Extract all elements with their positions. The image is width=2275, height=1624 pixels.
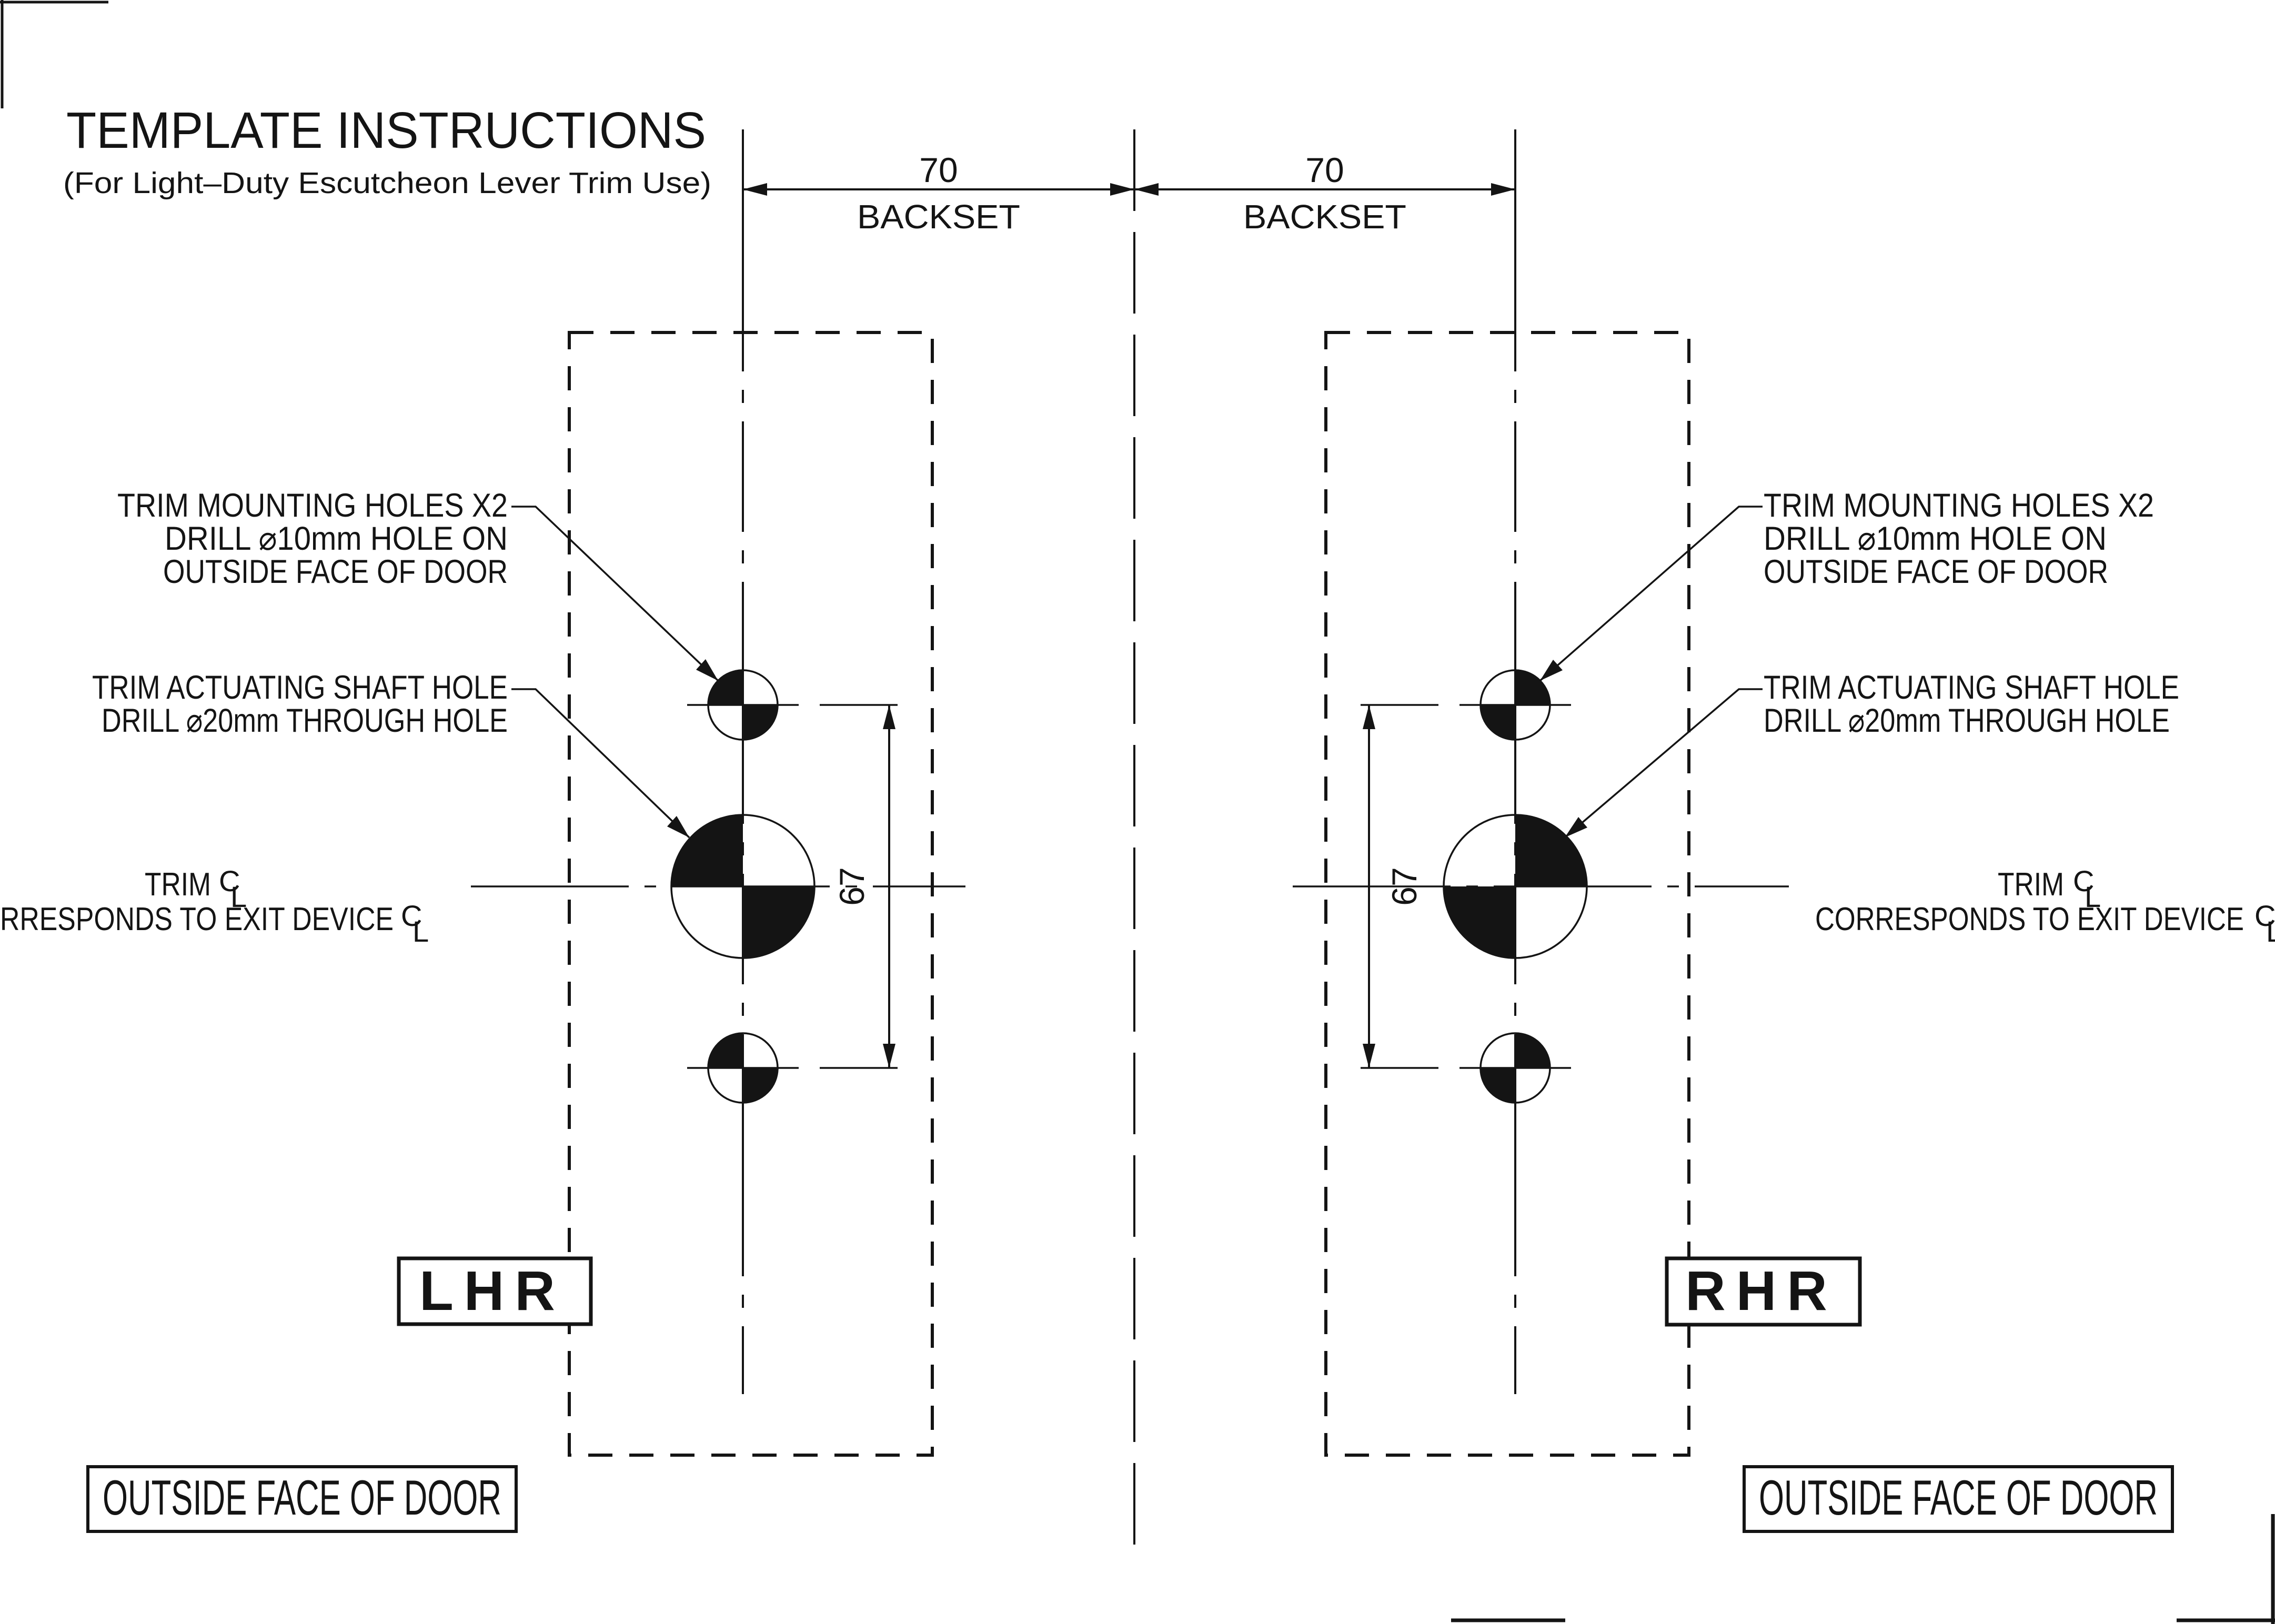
trim-cl-line2-left: RRESPONDS TO EXIT DEVICE [0,901,394,937]
hole-spacing-value-right: 67 [1385,867,1424,905]
lhr-diagram: 67 [671,670,898,1103]
centerline-symbol: C L [401,899,429,948]
backset-label-right: BACKSET [1243,198,1406,236]
mounting-label-line3: OUTSIDE FACE OF DOOR [1764,553,2108,590]
outside-face-box-right: OUTSIDE FACE OF DOOR [1744,1467,2172,1531]
mounting-label-line1: TRIM MOUNTING HOLES X2 [1764,487,2154,524]
backset-dimension-right: 70 BACKSET [1134,150,1515,236]
annotations-right: TRIM MOUNTING HOLES X2 DRILL ⌀10mm HOLE … [1764,487,2275,948]
page-subtitle: (For Light–Duty Escutcheon Lever Trim Us… [63,166,711,200]
template-drawing-sheet: TEMPLATE INSTRUCTIONS (For Light–Duty Es… [0,0,2275,1624]
mounting-label-line2: DRILL ⌀10mm HOLE ON [165,520,508,557]
hole-quadrant-ne [1515,1033,1550,1068]
leader-mounting-right [1540,507,1763,681]
backset-label-left: BACKSET [857,198,1020,236]
mounting-label-line3: OUTSIDE FACE OF DOOR [163,553,508,590]
outside-face-label-right: OUTSIDE FACE OF DOOR [1759,1470,2158,1525]
backset-value-left: 70 [919,150,958,189]
hole-quadrant-sw [1481,705,1515,740]
actuating-label-line1: TRIM ACTUATING SHAFT HOLE [1764,669,2179,706]
arrowhead-left [743,183,767,196]
sheet-frame-corner-top-left [0,0,108,108]
arrowhead-down [1363,1044,1375,1068]
leader-actuating-right [1565,689,1763,838]
handing-box-rhr: RHR [1667,1258,1860,1325]
hole-quadrant-sw [1444,886,1515,958]
arrowhead-up [1363,705,1375,729]
centerlines [471,129,1789,1556]
centerline-symbol-l: L [412,915,429,948]
actuating-label-line2: DRILL ⌀20mm THROUGH HOLE [1764,702,2170,739]
handing-label-left: LHR [419,1260,566,1322]
mounting-hole-target-top [1459,670,1571,740]
mounting-hole-target-bottom [1459,1033,1571,1103]
actuating-label-line1: TRIM ACTUATING SHAFT HOLE [92,669,508,706]
hole-spacing-value-left: 67 [832,867,871,905]
arrowhead-right [1491,183,1515,196]
hole-quadrant-se [743,1068,778,1103]
backset-dimension-left: 70 BACKSET [743,150,1134,236]
handing-box-lhr: LHR [399,1258,591,1324]
backset-value-right: 70 [1305,150,1344,189]
mounting-label-line1: TRIM MOUNTING HOLES X2 [117,487,508,524]
hole-quadrant-se [743,705,778,740]
leader-actuating-left [511,689,689,838]
hole-quadrant-sw [1481,1068,1515,1103]
hole-quadrant-se [743,886,814,958]
mounting-label-line2: DRILL ⌀10mm HOLE ON [1764,520,2107,557]
leader-mounting-left [511,507,718,681]
rhr-diagram: 67 [1361,670,1587,1103]
actuating-shaft-hole-target [671,815,814,958]
trim-cl-line2-right: CORRESPONDS TO EXIT DEVICE [1815,901,2244,937]
mounting-hole-target-top [687,670,799,740]
arrowhead-right [1110,183,1134,196]
page-title: TEMPLATE INSTRUCTIONS [66,102,706,159]
trim-cl-word-right: TRIM [1998,866,2064,903]
centerline-symbol: C L [2254,899,2275,948]
hole-quadrant-nw [708,1033,743,1068]
trim-cl-word-left: TRIM [145,866,211,903]
annotations-left: TRIM MOUNTING HOLES X2 DRILL ⌀10mm HOLE … [0,487,508,948]
arrowhead-up [883,705,895,729]
drawing-canvas: TEMPLATE INSTRUCTIONS (For Light–Duty Es… [0,0,2275,1624]
centerline-symbol-l: L [2266,915,2275,948]
handing-label-right: RHR [1685,1260,1838,1322]
outside-face-label-left: OUTSIDE FACE OF DOOR [103,1470,501,1525]
outside-face-box-left: OUTSIDE FACE OF DOOR [88,1467,516,1531]
actuating-label-line2: DRILL ⌀20mm THROUGH HOLE [102,702,508,739]
arrowhead-left [1134,183,1159,196]
leader-lines [511,507,1763,838]
arrowhead-down [883,1044,895,1068]
mounting-hole-target-bottom [687,1033,799,1103]
